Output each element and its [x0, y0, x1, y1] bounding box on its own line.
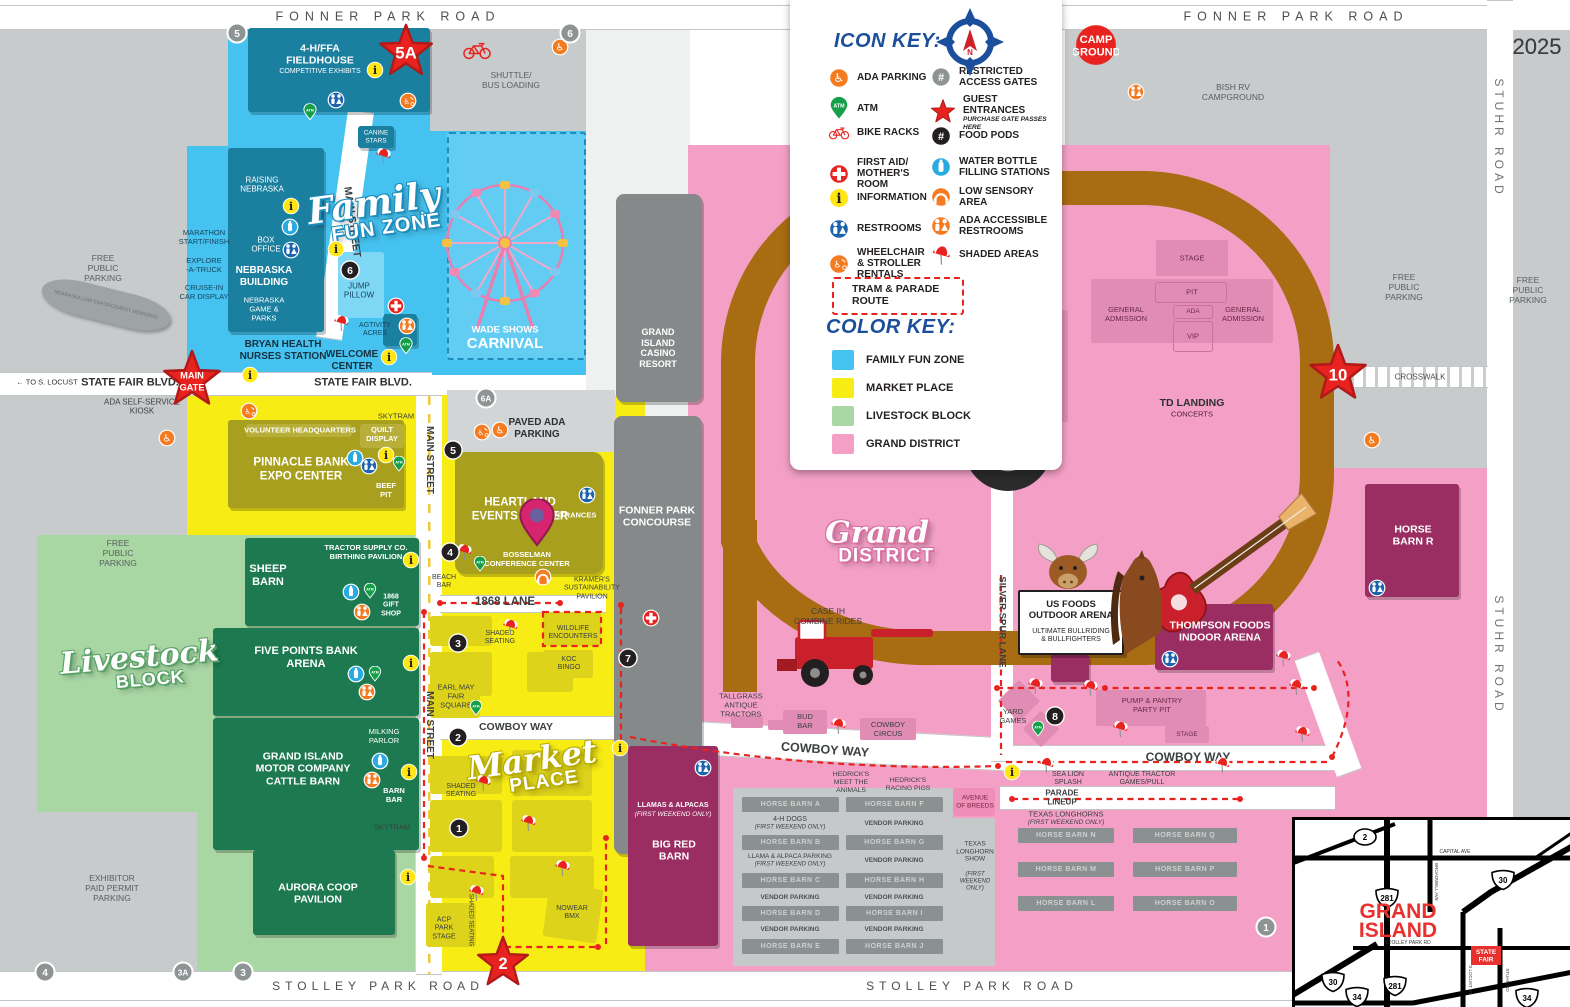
food-pod-3: 3	[448, 633, 469, 654]
wheelchair-stroller-rentals-icon: ♿	[399, 92, 417, 110]
restrooms-icon	[360, 457, 378, 475]
wheelchair-stroller-rentals-icon: ♿	[473, 423, 491, 441]
map-label: TEXAS LONGHORNS	[1028, 811, 1103, 820]
first-aid-icon	[642, 609, 660, 627]
restrooms-icon	[694, 759, 712, 777]
guest-entrance-star-MAIN-GATE: MAINGATE	[161, 349, 223, 411]
svg-text:♿: ♿	[163, 433, 172, 444]
atm-icon: ATM	[303, 103, 318, 120]
svg-text:GROUND: GROUND	[1073, 47, 1119, 59]
map-label: BOSSELMANCONFERENCE CENTER	[484, 551, 569, 569]
five-points-bank-arena	[213, 628, 419, 716]
atm-icon: ATM	[828, 96, 850, 121]
map-label: SKYTRAM	[378, 413, 414, 422]
map-label: AVENUEOF BREEDS	[956, 794, 994, 809]
svg-text:3: 3	[455, 638, 461, 650]
svg-text:CAPITAL AVE: CAPITAL AVE	[1439, 849, 1471, 855]
barn-bar: HORSE BARN F	[846, 797, 943, 812]
shaded-area-icon	[1213, 756, 1231, 774]
svg-text:♿: ♿	[834, 259, 842, 270]
map-label: PAVED ADAPARKING	[508, 417, 565, 441]
food-pod-icon: #	[930, 125, 952, 147]
key-item-shaded-area: SHADED AREAS	[930, 244, 1039, 266]
map-label: HEDRICK'SRACING PIGS	[886, 777, 931, 793]
first-aid-icon	[828, 163, 850, 185]
icon-key-panel: ICON KEY: COLOR KEY: ♿ ADA PARKINGATM AT…	[790, 0, 1062, 470]
map-label: CANINESTARS	[364, 129, 389, 144]
svg-text:i: i	[384, 448, 388, 462]
map-label: COWBOYCIRCUS	[871, 721, 905, 739]
svg-text:8: 8	[1052, 711, 1058, 723]
barn-bar: HORSE BARN O	[1133, 896, 1237, 911]
map-label: NEBRASKABUILDING	[236, 265, 293, 289]
wheelchair-stroller-rentals-icon: ♿	[240, 402, 258, 420]
svg-text:ATM: ATM	[1034, 725, 1041, 729]
ada-parking-icon: ♿	[491, 421, 509, 439]
map-label: THOMPSON FOODSINDOOR ARENA	[1170, 620, 1271, 645]
svg-text:♿: ♿	[404, 97, 411, 106]
map-label: YARDGAMES	[999, 708, 1026, 726]
svg-text:i: i	[618, 741, 622, 755]
map-label: LLAMAS & ALPACAS	[637, 802, 708, 810]
information-icon: i	[402, 654, 420, 672]
svg-text:♿: ♿	[496, 425, 505, 436]
food-pod-6: 6	[340, 260, 361, 281]
map-label: VENDOR PARKING	[864, 894, 923, 902]
map-label: CONCERTS	[1171, 411, 1213, 420]
svg-text:3: 3	[240, 968, 246, 979]
grand-island-inset-map: 228128130303434CAPITAL AVESTOLLEY PARK R…	[1292, 817, 1570, 1007]
map-pin-icon	[516, 499, 558, 549]
color-key-label: GRAND DISTRICT	[866, 438, 960, 450]
svg-text:i: i	[409, 656, 413, 670]
map-label: BARNBAR	[383, 787, 405, 805]
map-label: VENDOR PARKING	[760, 894, 819, 902]
svg-text:ATM: ATM	[833, 104, 845, 110]
barn-bar: HORSE BARN J	[846, 939, 943, 954]
svg-text:STUHR RD: STUHR RD	[1505, 968, 1510, 992]
map-label: STAGE	[1180, 255, 1205, 264]
map-label: AURORA COOPPAVILION	[278, 882, 358, 907]
map-label: CROSSWALK	[1395, 372, 1446, 381]
map-label: STUHR ROAD	[1492, 595, 1506, 714]
svg-text:i: i	[387, 350, 391, 364]
map-label: KOCBINGO	[558, 656, 581, 673]
map-label: NOWEARBMX	[556, 905, 588, 922]
map-label: BOXOFFICE	[251, 236, 280, 255]
first-aid-icon	[387, 297, 405, 315]
svg-text:1: 1	[1263, 923, 1269, 934]
map-label: (FIRST WEEKEND ONLY)	[635, 811, 712, 819]
information-icon: i	[1003, 763, 1021, 781]
shaded-area-icon	[1037, 756, 1055, 774]
information-icon: i	[402, 551, 420, 569]
svg-text:30: 30	[1329, 978, 1338, 987]
key-item-first-aid: FIRST AID/MOTHER'SROOM	[828, 157, 909, 191]
map-label: CRUISE-INCAR DISPLAY	[179, 284, 228, 302]
restrooms-icon	[578, 486, 596, 504]
gate-5: 5	[226, 22, 248, 44]
map-label: FREEPUBLICPARKING	[1509, 275, 1547, 305]
map-label: CASE IHCOMBINE RIDES	[794, 606, 862, 626]
usfoods-stub	[1051, 654, 1089, 682]
shaded-area-icon	[1287, 678, 1305, 696]
shaded-area-icon	[1111, 720, 1129, 738]
svg-text:2: 2	[498, 955, 507, 973]
ada-restrooms-icon	[353, 603, 371, 621]
svg-text:ATM: ATM	[402, 342, 410, 346]
guest-entrance-star-5A: 5A	[377, 23, 435, 81]
shaded-area-icon	[1293, 725, 1311, 743]
svg-text:34: 34	[1523, 994, 1532, 1003]
shaded-area-icon	[829, 717, 847, 735]
barn-bar: HORSE BARN D	[742, 906, 839, 921]
information-icon: i	[380, 348, 398, 366]
ada-parking-icon: ♿	[158, 429, 176, 447]
map-label: (FIRST WEEKEND ONLY)	[755, 824, 826, 831]
low-sensory-icon	[534, 568, 552, 586]
svg-text:5A: 5A	[395, 43, 417, 62]
svg-text:ATM: ATM	[472, 704, 479, 708]
shaded-area-icon	[519, 814, 537, 832]
svg-text:2: 2	[1363, 833, 1368, 842]
key-item-water-bottle: WATER BOTTLEFILLING STATIONS	[930, 156, 1050, 178]
svg-text:2: 2	[455, 732, 461, 744]
svg-text:i: i	[334, 242, 338, 256]
restrooms-icon	[1368, 579, 1386, 597]
svg-text:6A: 6A	[481, 394, 492, 403]
svg-text:281: 281	[1388, 982, 1402, 991]
information-icon: i	[400, 763, 418, 781]
map-label: WILDLIFEENCOUNTERS	[548, 625, 597, 642]
svg-text:i: i	[1010, 765, 1014, 779]
map-label: BEACHBAR	[432, 574, 456, 591]
atm-icon: ATM	[392, 456, 406, 472]
svg-text:4: 4	[447, 547, 453, 559]
information-icon: i	[611, 739, 629, 757]
wheelchair-stroller-rentals-icon: ♿	[828, 253, 850, 275]
water-bottle-icon	[347, 665, 365, 683]
svg-text:FAIR: FAIR	[1479, 957, 1494, 964]
color-key-title: COLOR KEY:	[826, 316, 955, 339]
barn-bar: HORSE BARN H	[846, 873, 943, 888]
map-label: ANTIQUE TRACTORGAMES/PULL	[1109, 771, 1176, 788]
map-label: WELCOMECENTER	[326, 349, 378, 373]
svg-text:ATM: ATM	[366, 587, 373, 591]
key-item-low-sensory: LOW SENSORY AREA	[930, 186, 1062, 208]
map-label: SILVER SPUR LANE	[996, 576, 1007, 667]
map-label: PIT	[1186, 289, 1198, 298]
map-label: STAGE	[1176, 731, 1198, 739]
svg-text:5: 5	[234, 29, 240, 40]
svg-text:3A: 3A	[178, 968, 189, 977]
map-label: PUMP & PANTRYPARTY PIT	[1122, 697, 1182, 715]
map-label: MAIN STREET	[423, 691, 435, 759]
map-label: 2025	[1513, 34, 1562, 60]
map-label: COMPETITIVE EXHIBITS	[279, 68, 360, 76]
barn-bar: HORSE BARN L	[1018, 896, 1114, 911]
svg-text:STATE: STATE	[1476, 949, 1497, 956]
map-label: GRANDISLANDCASINORESORT	[639, 327, 677, 369]
ada-restrooms-icon	[358, 683, 376, 701]
key-item-restrooms: RESTROOMS	[828, 218, 921, 240]
barn-bar: HORSE BARN I	[846, 906, 943, 921]
gate-1: 1	[1255, 916, 1277, 938]
information-icon: i	[327, 240, 345, 258]
gate-6: 6	[559, 22, 581, 44]
svg-text:GATE: GATE	[179, 383, 204, 393]
map-label: VENDOR PARKING	[760, 926, 819, 934]
svg-text:i: i	[407, 765, 411, 779]
guest-entrance-star-10: 10	[1307, 343, 1369, 405]
svg-text:1: 1	[456, 823, 462, 835]
map-label: GENERALADMISSION	[1105, 306, 1147, 324]
map-label: TRACTOR SUPPLY CO.BIRTHING PAVILION	[324, 544, 407, 562]
svg-text:i: i	[836, 191, 841, 207]
information-icon: i	[241, 366, 259, 384]
svg-text:MAIN: MAIN	[180, 370, 204, 380]
parking-ffz-notch	[187, 28, 228, 146]
map-label: PARADELINEUP	[1045, 789, 1078, 808]
color-key-label: LIVESTOCK BLOCK	[866, 410, 971, 422]
barn-bar: HORSE BARN N	[1018, 828, 1114, 843]
svg-text:4: 4	[42, 968, 48, 979]
map-label: JUMPPILLOW	[344, 282, 374, 301]
barn-bar: HORSE BARN C	[742, 873, 839, 888]
water-bottle-icon	[371, 752, 389, 770]
svg-text:34: 34	[1353, 993, 1362, 1002]
svg-text:10: 10	[1329, 365, 1348, 384]
food-pod-1: 1	[449, 818, 470, 839]
tram-parade-route-label: TRAM & PARADEROUTE	[852, 284, 939, 308]
bike-rack-icon	[828, 125, 850, 140]
key-item-ada-parking: ♿ ADA PARKING	[828, 67, 926, 89]
shaded-area-icon	[467, 884, 485, 902]
svg-text:♿: ♿	[1368, 435, 1377, 446]
low-sensory-icon	[930, 186, 952, 208]
map-label: BRYAN HEALTHNURSES STATION	[240, 339, 327, 363]
atm-icon: ATM	[368, 666, 382, 682]
map-label: US FOODSOUTDOOR ARENA	[1029, 599, 1114, 621]
key-item-atm: ATM ATM	[828, 96, 878, 121]
svg-text:i: i	[406, 870, 410, 884]
map-label: FREEPUBLICPARKING	[1385, 272, 1423, 302]
map-label: MARATHONSTART/FINISH	[179, 229, 230, 247]
map-label: HORSEBARN R	[1393, 524, 1434, 549]
barn-bar: HORSE BARN B	[742, 835, 839, 850]
svg-text:i: i	[409, 553, 413, 567]
atm-icon: ATM	[399, 337, 414, 354]
map-label: SHEEPBARN	[249, 563, 286, 589]
svg-text:N: N	[967, 48, 973, 57]
map-label: VENDOR PARKING	[864, 857, 923, 865]
shaded-area-icon	[553, 859, 571, 877]
barn-bar: HORSE BARN M	[1018, 862, 1114, 877]
key-item-bike-rack: BIKE RACKS	[828, 125, 919, 140]
map-label: MILKINGPARLOR	[369, 728, 400, 746]
map-label: (FIRSTWEEKENDONLY)	[960, 871, 990, 892]
information-icon: i	[828, 187, 850, 209]
map-label: STUHR ROAD	[1492, 78, 1506, 197]
ada-restrooms-icon	[1127, 83, 1145, 101]
svg-text:#: #	[938, 131, 944, 143]
color-key-label: MARKET PLACE	[866, 382, 953, 394]
water-bottle-icon	[342, 583, 360, 601]
map-label: HEDRICK'SMEET THEANIMALS	[833, 771, 869, 795]
key-item-information: i INFORMATION	[828, 187, 927, 209]
map-label: VIP	[1187, 333, 1199, 342]
map-label: AGTIVITYACRES	[359, 322, 391, 339]
tallgrass-block-2	[768, 720, 796, 730]
map-label: CARNIVAL	[467, 335, 543, 353]
shaded-area-icon	[332, 314, 350, 332]
atm-icon: ATM	[363, 583, 377, 599]
restrooms-icon	[828, 218, 850, 240]
map-label: WADE SHOWS	[471, 324, 538, 335]
parking-e	[1330, 202, 1487, 468]
map-label: RAISINGNEBRASKA	[240, 176, 284, 195]
map-label: PINNACLE BANKEXPO CENTER	[253, 456, 348, 483]
food-pod-7: 7	[618, 648, 639, 669]
map-label: VENDOR PARKING	[864, 926, 923, 934]
map-label: SEA LIONSPLASH	[1052, 771, 1084, 788]
gate-3: 3	[232, 961, 254, 983]
svg-text:30: 30	[1499, 876, 1508, 885]
svg-text:♿: ♿	[556, 42, 565, 53]
map-label: 1868 LANE	[475, 596, 535, 610]
food-pod-8: 8	[1045, 706, 1066, 727]
map-label: VENDOR PARKING	[864, 820, 923, 828]
restrooms-icon	[282, 241, 300, 259]
map-label: 4-H/FFAFIELDHOUSE	[286, 43, 354, 68]
information-icon: i	[282, 197, 300, 215]
svg-text:♿: ♿	[478, 428, 485, 437]
svg-text:ATM: ATM	[371, 670, 378, 674]
map-label: VOLUNTEER HEADQUARTERS	[244, 427, 356, 436]
map-label: STOLLEY PARK ROAD	[866, 979, 1078, 993]
gate-4: 4	[34, 961, 56, 983]
gate-3A: 3A	[172, 961, 194, 983]
map-label: BUDBAR	[797, 713, 813, 731]
map-label: SHUTTLE/BUS LOADING	[482, 70, 540, 90]
barn-bar: HORSE BARN Q	[1133, 828, 1237, 843]
color-swatch	[832, 378, 854, 398]
camp-ground-icon: CAMPGROUND	[1073, 22, 1119, 68]
ada-parking-icon: ♿	[1363, 431, 1381, 449]
map-label: GENERALADMISSION	[1222, 306, 1264, 324]
map-label: STOLLEY PARK ROAD	[272, 979, 484, 993]
restrooms-icon	[327, 91, 345, 109]
color-swatch	[832, 434, 854, 454]
map-label: QUILTDISPLAY	[366, 426, 398, 444]
svg-text:ISLAND: ISLAND	[1359, 919, 1437, 942]
shaded-area-icon	[1274, 649, 1292, 667]
grand-island-casino-resort	[616, 194, 702, 402]
fair-map: ICON KEY: COLOR KEY: ♿ ADA PARKINGATM AT…	[0, 0, 1570, 1007]
map-label: (FIRST WEEKEND ONLY)	[1028, 819, 1105, 827]
map-label: BEEFPIT	[376, 482, 396, 500]
ada-restrooms-icon	[363, 771, 381, 789]
map-label: EXHIBITORPAID PERMITPARKING	[85, 873, 139, 903]
map-label: TALLGRASSANTIQUETRACTORS	[719, 693, 763, 720]
map-label: TEXASLONGHORNSHOW	[956, 841, 994, 864]
map-label: TD LANDING	[1160, 397, 1225, 409]
restrooms-icon	[1161, 650, 1179, 668]
key-item-food-pod: # FOOD PODS	[930, 125, 1019, 147]
svg-text:i: i	[289, 199, 293, 213]
color-swatch	[832, 350, 854, 370]
barn-bar: HORSE BARN P	[1133, 862, 1237, 877]
gate-6A: 6A	[475, 387, 497, 409]
svg-text:♿: ♿	[834, 71, 845, 85]
map-label: ACPPARKSTAGE	[432, 917, 455, 942]
bike-rack-icon	[462, 40, 492, 61]
map-label: FONNER PARKCONCOURSE	[619, 505, 695, 530]
atm-icon: ATM	[473, 556, 487, 572]
map-label: LLAMA & ALPACA PARKING	[748, 853, 832, 861]
ada-parking-icon: ♿	[828, 67, 850, 89]
barn-bar: HORSE BARN A	[742, 797, 839, 812]
map-label: COWBOY WAY	[479, 721, 553, 733]
compass-icon: N	[933, 5, 1007, 79]
ada-restrooms-icon	[930, 215, 952, 237]
barn-bar: HORSE BARN G	[846, 835, 943, 850]
map-label: 1868GIFTSHOP	[381, 594, 401, 619]
shaded-area-icon	[1081, 679, 1099, 697]
food-pod-4: 4	[440, 542, 461, 563]
svg-text:S LOCUST ST: S LOCUST ST	[1468, 965, 1473, 995]
map-label: BIG REDBARN	[652, 839, 696, 864]
map-label: EXPLORE-A-TRUCK	[186, 257, 222, 275]
map-label: ADA	[1186, 308, 1199, 316]
svg-text:i: i	[248, 368, 252, 382]
map-label: KRAMER'SSUSTAINABILITYPAVILION	[564, 577, 620, 602]
svg-text:ATM: ATM	[306, 108, 314, 112]
key-item-ada-restrooms: ADA ACCESSIBLERESTROOMS	[930, 215, 1047, 237]
shaded-area-icon	[1026, 677, 1044, 695]
icon-key-title: ICON KEY:	[834, 30, 941, 53]
barn-bar: HORSE BARN E	[742, 939, 839, 954]
svg-text:7: 7	[625, 653, 631, 665]
map-label: MAIN STREET	[423, 426, 435, 494]
ada-restrooms-icon	[398, 317, 416, 335]
atm-icon: ATM	[469, 700, 483, 716]
color-key-label: FAMILY FUN ZONE	[866, 354, 964, 366]
shaded-area-icon	[474, 774, 492, 792]
svg-text:ATM: ATM	[476, 560, 483, 564]
guest-entrance-star-2: 2	[475, 935, 531, 991]
shaded-area-icon	[501, 618, 519, 636]
water-bottle-icon	[930, 156, 952, 178]
map-label: FREEPUBLICPARKING	[84, 253, 122, 283]
shaded-area-icon	[374, 147, 392, 165]
color-swatch	[832, 406, 854, 426]
shaded-area-icon	[930, 244, 952, 266]
water-bottle-icon	[281, 218, 299, 236]
map-label: ULTIMATE BULLRIDING& BULLFIGHTERS	[1032, 628, 1110, 645]
map-label: NEBRASKAGAME &PARKS	[244, 297, 285, 324]
map-label: SKYTRAM	[374, 824, 410, 833]
food-pod-5: 5	[443, 440, 464, 461]
atm-icon: ATM	[1031, 721, 1045, 737]
map-label: (FIRST WEEKEND ONLY)	[755, 861, 826, 868]
map-label: GRAND ISLANDMOTOR COMPANYCATTLE BARN	[256, 750, 351, 787]
guest-entrance-icon	[930, 99, 956, 125]
key-item-wheelchair-stroller-rentals: ♿ WHEELCHAIR& STROLLERRENTALS	[828, 247, 925, 281]
grand-district-title: Grand DISTRICT	[820, 519, 934, 566]
map-label: BISH RVCAMPGROUND	[1202, 82, 1264, 102]
map-label: FREEPUBLICPARKING	[99, 538, 137, 568]
